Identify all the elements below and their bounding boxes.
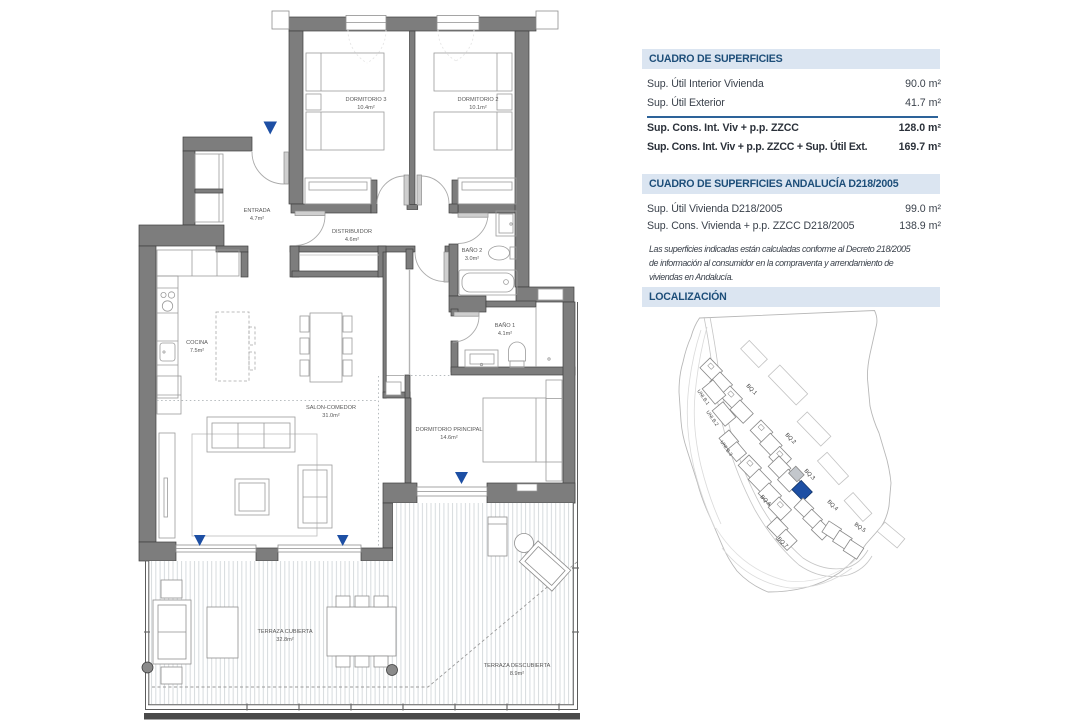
svg-text:TERRAZA CUBIERTA: TERRAZA CUBIERTA bbox=[257, 629, 312, 635]
svg-text:TERRAZA DESCUBIERTA: TERRAZA DESCUBIERTA bbox=[484, 663, 551, 669]
svg-text:BAÑO 2: BAÑO 2 bbox=[462, 247, 483, 254]
svg-text:32.8m²: 32.8m² bbox=[276, 637, 294, 643]
svg-text:DORMITORIO 3: DORMITORIO 3 bbox=[346, 97, 387, 103]
svg-text:DORMITORIO 2: DORMITORIO 2 bbox=[458, 97, 499, 103]
svg-text:SALON-COMEDOR: SALON-COMEDOR bbox=[306, 405, 356, 411]
svg-text:COCINA: COCINA bbox=[186, 340, 208, 346]
svg-text:DORMITORIO PRINCIPAL: DORMITORIO PRINCIPAL bbox=[416, 427, 483, 433]
svg-text:4.6m²: 4.6m² bbox=[345, 237, 359, 243]
svg-text:14.6m²: 14.6m² bbox=[440, 435, 458, 441]
svg-text:4.1m²: 4.1m² bbox=[498, 331, 512, 337]
svg-text:4.7m²: 4.7m² bbox=[250, 216, 264, 222]
svg-text:8.9m²: 8.9m² bbox=[510, 671, 524, 677]
svg-text:10.4m²: 10.4m² bbox=[357, 105, 375, 111]
svg-text:BAÑO 1: BAÑO 1 bbox=[495, 322, 516, 329]
svg-text:DISTRIBUIDOR: DISTRIBUIDOR bbox=[332, 229, 372, 235]
svg-text:31.0m²: 31.0m² bbox=[322, 413, 340, 419]
svg-text:ENTRADA: ENTRADA bbox=[244, 208, 271, 214]
svg-text:3.0m²: 3.0m² bbox=[465, 256, 479, 262]
svg-text:10.1m²: 10.1m² bbox=[469, 105, 487, 111]
svg-text:7.5m²: 7.5m² bbox=[190, 348, 204, 354]
